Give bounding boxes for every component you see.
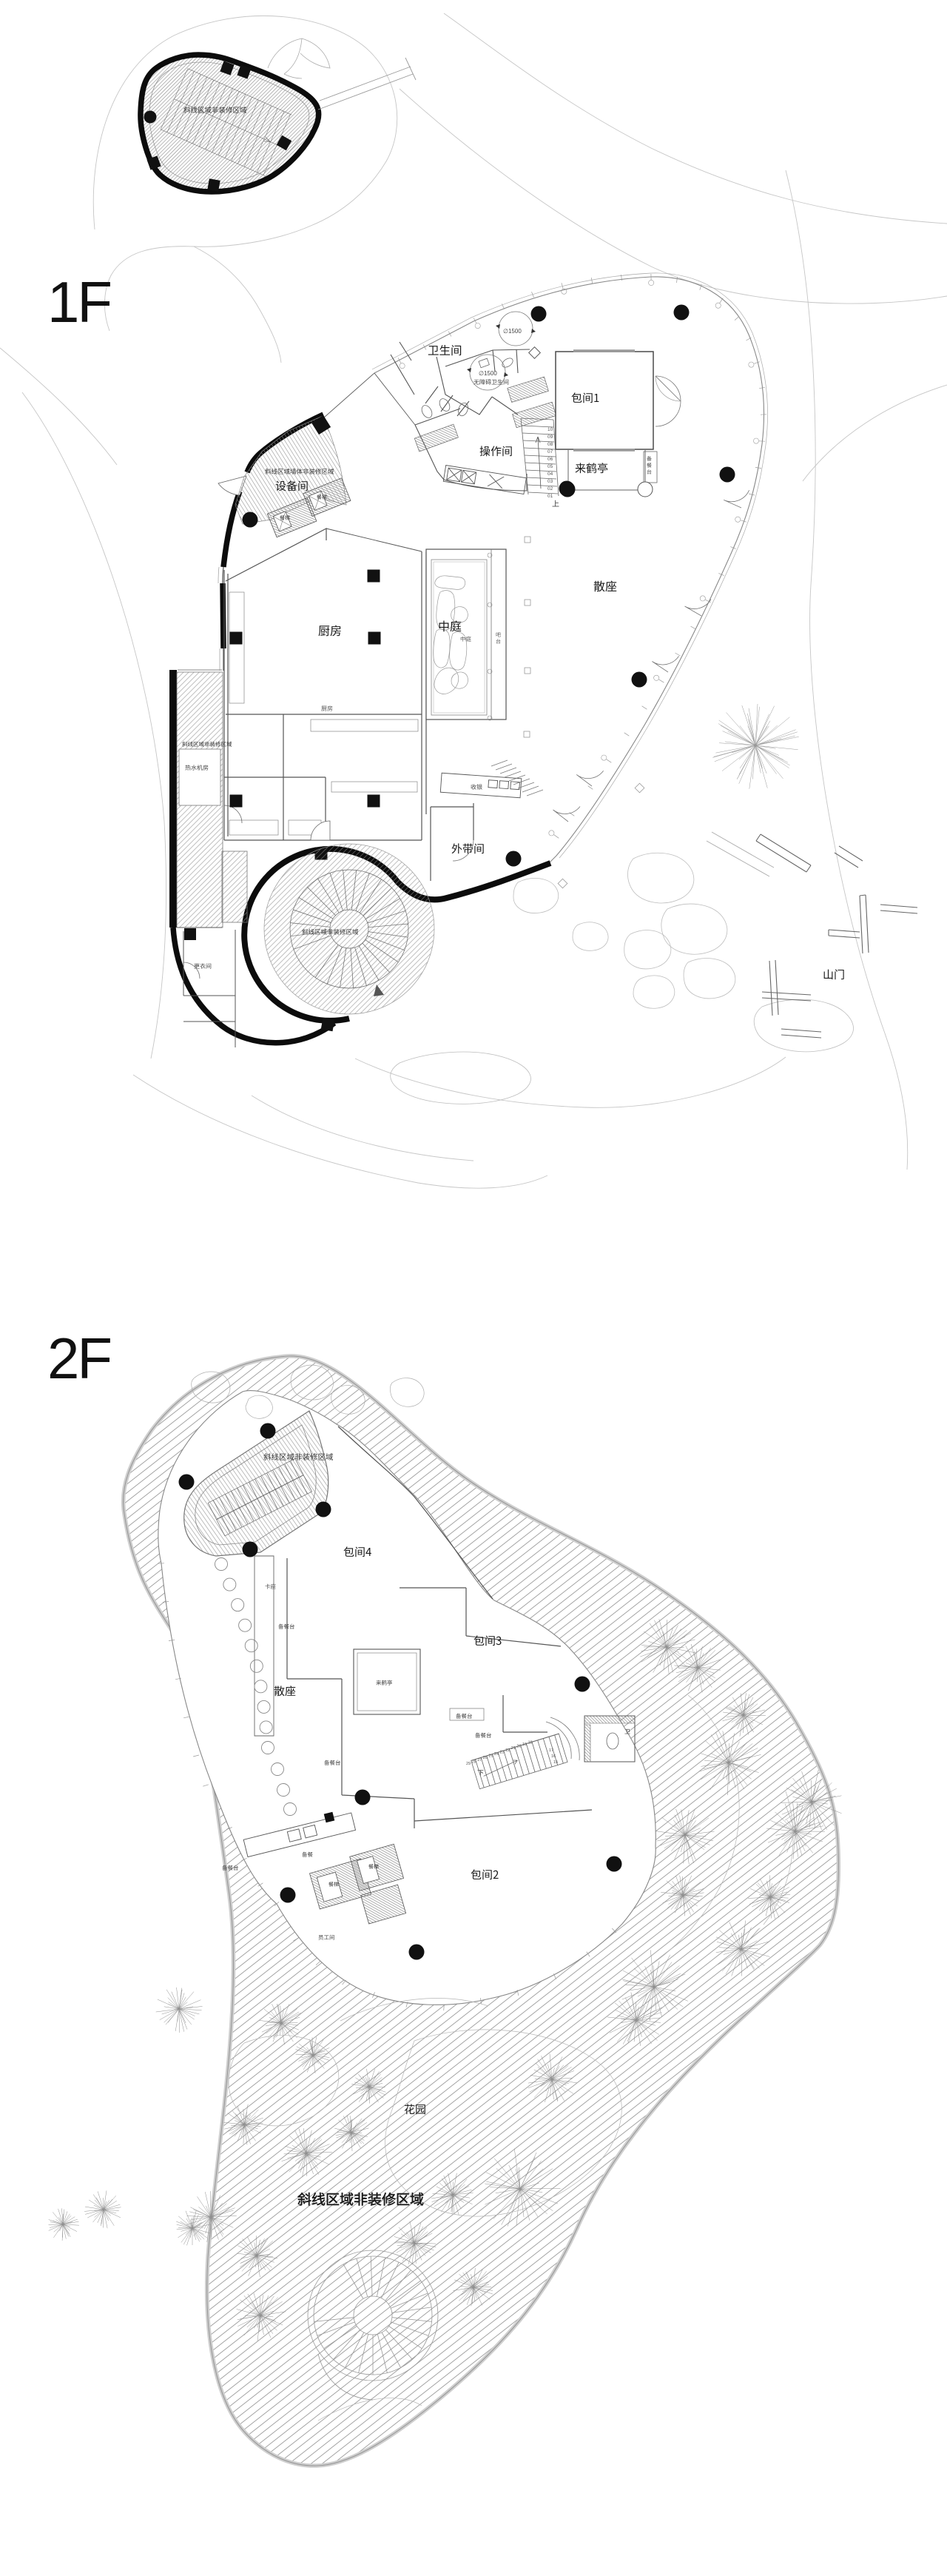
- svg-text:26: 26: [483, 1756, 488, 1760]
- svg-text:21: 21: [511, 1746, 516, 1751]
- svg-text:01: 01: [547, 494, 553, 499]
- svg-text:24: 24: [494, 1752, 499, 1757]
- svg-text:06: 06: [547, 457, 553, 462]
- svg-text:15: 15: [553, 1760, 558, 1765]
- svg-text:1F: 1F: [47, 269, 110, 335]
- svg-text:07: 07: [547, 449, 553, 455]
- svg-text:08: 08: [547, 442, 553, 447]
- svg-text:09: 09: [547, 435, 553, 440]
- svg-text:25: 25: [488, 1754, 493, 1759]
- svg-text:23: 23: [500, 1750, 505, 1754]
- svg-text:04: 04: [547, 472, 553, 477]
- svg-text:20: 20: [516, 1745, 521, 1749]
- svg-text:19: 19: [522, 1743, 527, 1747]
- svg-text:16: 16: [551, 1754, 556, 1759]
- svg-text:22: 22: [505, 1748, 510, 1753]
- svg-text:∅1500: ∅1500: [479, 370, 497, 377]
- svg-text:05: 05: [547, 464, 553, 469]
- svg-text:27: 27: [477, 1758, 482, 1762]
- svg-text:2F: 2F: [47, 1326, 110, 1391]
- svg-text:∅1500: ∅1500: [503, 328, 522, 335]
- svg-text:10: 10: [547, 427, 553, 432]
- svg-text:02: 02: [547, 486, 553, 492]
- svg-text:28: 28: [472, 1760, 476, 1764]
- svg-text:03: 03: [547, 479, 553, 484]
- svg-text:18: 18: [528, 1740, 533, 1745]
- svg-text:17: 17: [549, 1748, 553, 1753]
- svg-text:29: 29: [466, 1762, 471, 1766]
